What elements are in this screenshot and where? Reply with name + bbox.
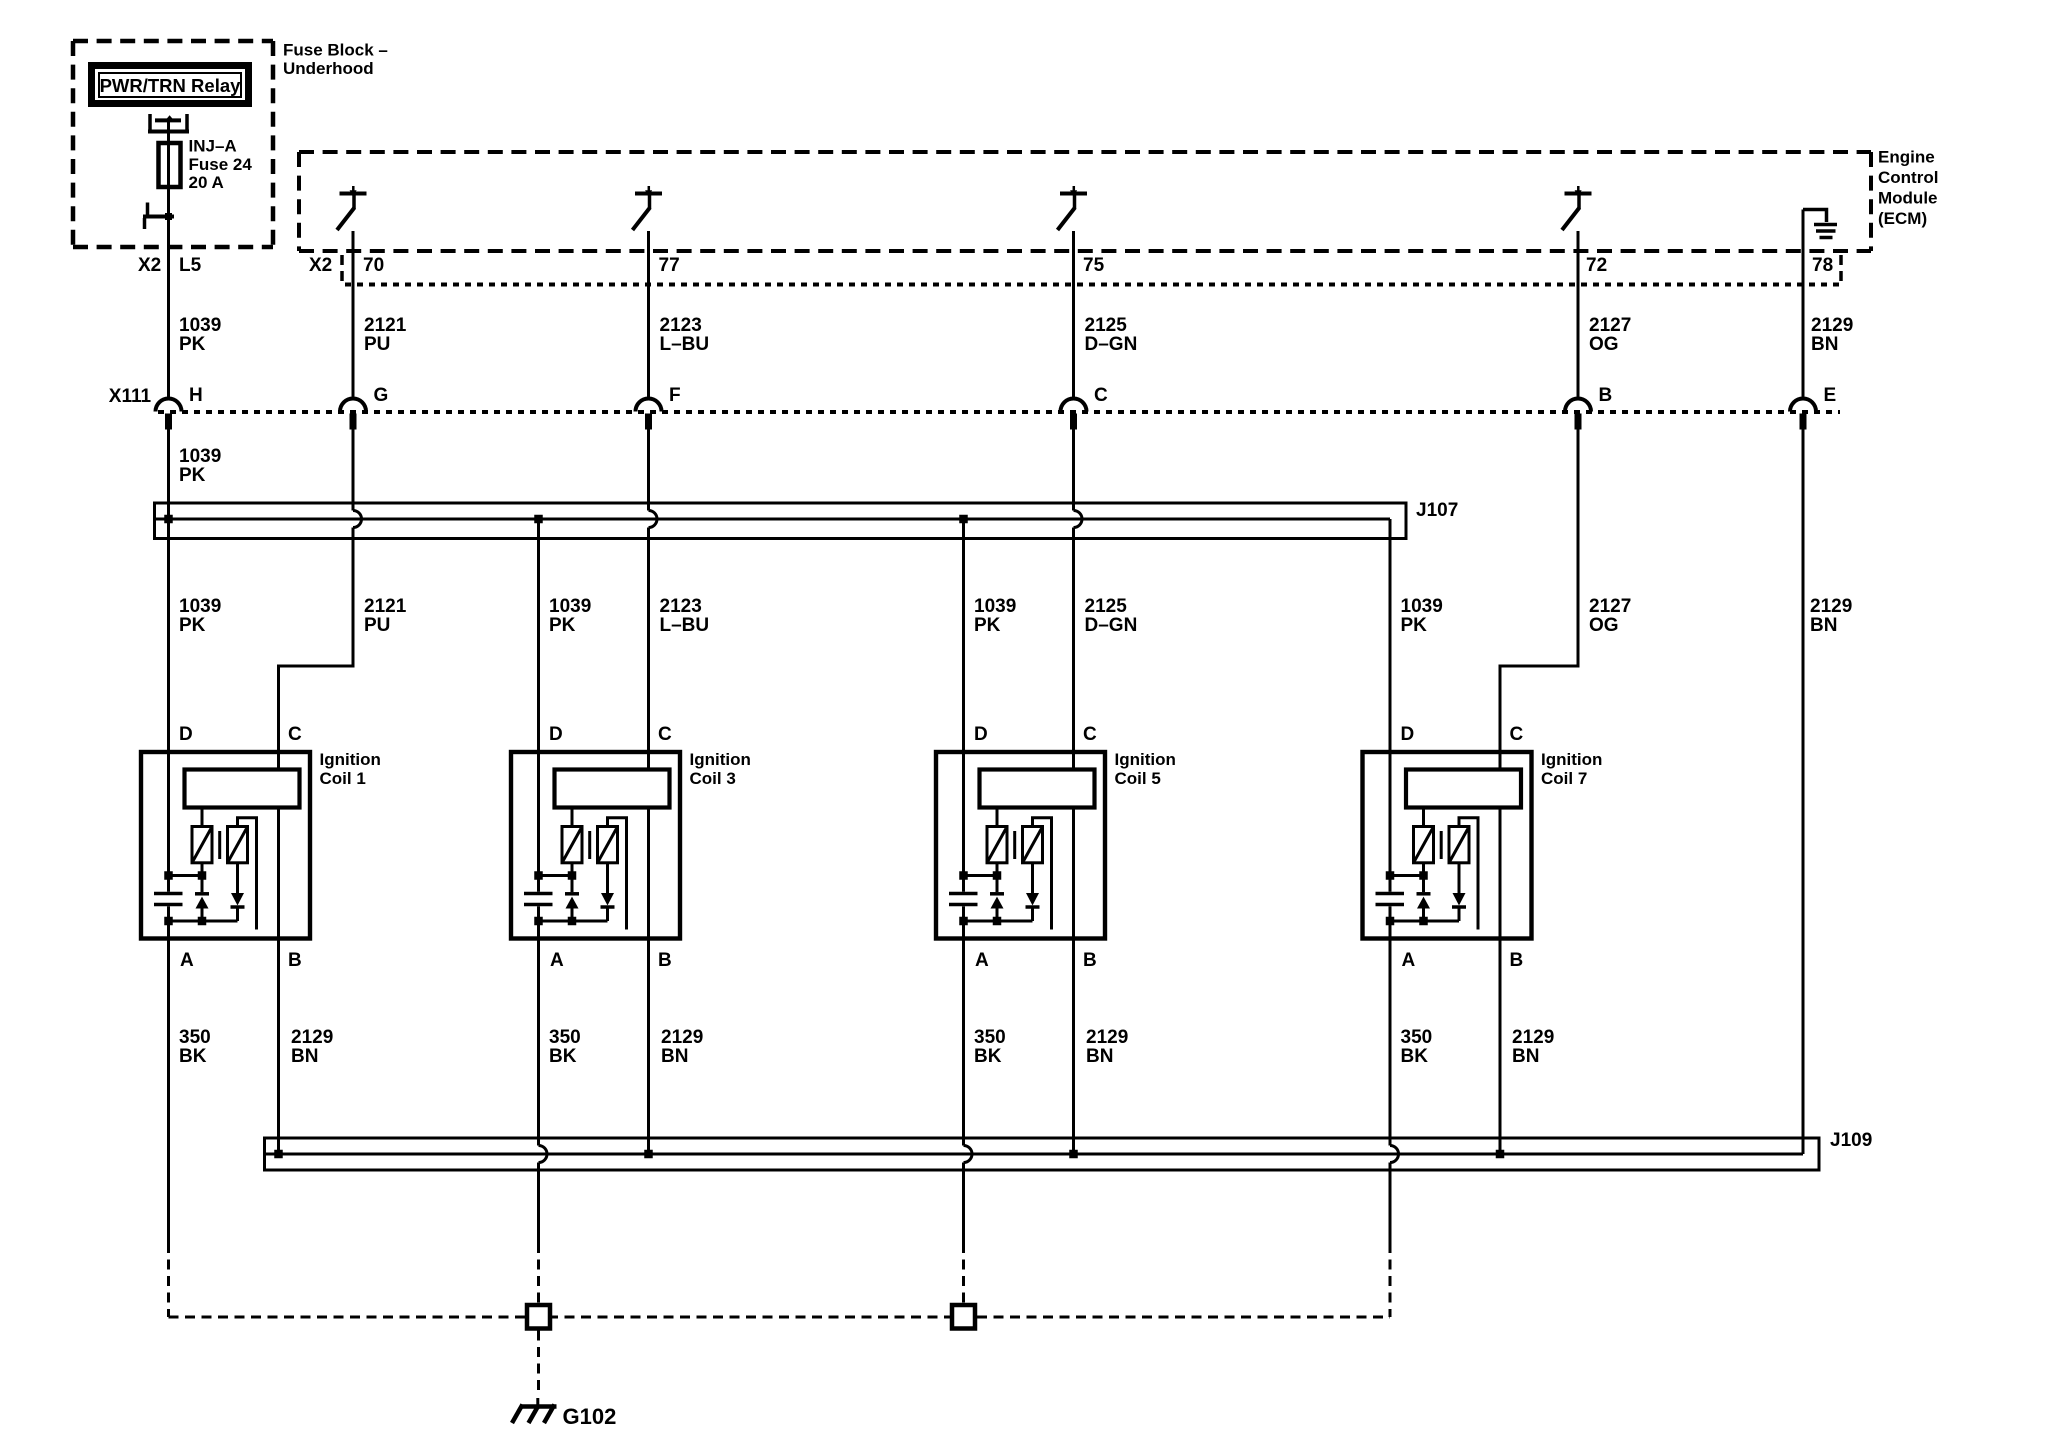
svg-text:2127: 2127 [1589, 596, 1631, 617]
svg-text:L–BU: L–BU [660, 615, 710, 636]
svg-text:(ECM): (ECM) [1878, 209, 1927, 228]
svg-text:BN: BN [661, 1046, 688, 1067]
svg-text:E: E [1824, 385, 1837, 406]
svg-text:C: C [658, 724, 672, 745]
svg-text:D–GN: D–GN [1085, 615, 1138, 636]
svg-text:B: B [1083, 950, 1097, 971]
svg-text:Ignition: Ignition [690, 750, 751, 769]
svg-text:X2: X2 [309, 255, 332, 276]
svg-text:PK: PK [974, 615, 1001, 636]
svg-text:75: 75 [1083, 255, 1105, 276]
svg-text:Coil 3: Coil 3 [690, 769, 736, 788]
svg-text:Coil 7: Coil 7 [1541, 769, 1587, 788]
svg-text:Ignition: Ignition [1541, 750, 1602, 769]
svg-text:1039: 1039 [179, 446, 221, 467]
svg-text:72: 72 [1586, 255, 1607, 276]
svg-text:F: F [669, 385, 681, 406]
svg-text:G102: G102 [563, 1404, 617, 1429]
svg-text:Ignition: Ignition [320, 750, 381, 769]
svg-text:J109: J109 [1830, 1130, 1872, 1151]
svg-text:PU: PU [364, 615, 390, 636]
svg-text:A: A [550, 950, 564, 971]
svg-text:2129: 2129 [1512, 1027, 1554, 1048]
svg-text:B: B [1510, 950, 1524, 971]
svg-text:J107: J107 [1416, 500, 1458, 521]
svg-text:BK: BK [974, 1046, 1002, 1067]
svg-text:2123: 2123 [660, 315, 702, 336]
svg-text:L5: L5 [179, 255, 202, 276]
svg-text:X2: X2 [138, 255, 161, 276]
svg-text:2127: 2127 [1589, 315, 1631, 336]
svg-text:2129: 2129 [291, 1027, 333, 1048]
svg-text:INJ–A: INJ–A [189, 137, 237, 156]
svg-text:PU: PU [364, 334, 390, 355]
svg-text:350: 350 [1401, 1027, 1433, 1048]
svg-text:BK: BK [1401, 1046, 1429, 1067]
svg-text:2129: 2129 [1810, 596, 1852, 617]
svg-text:1039: 1039 [1401, 596, 1443, 617]
svg-text:BN: BN [1086, 1046, 1113, 1067]
svg-text:2129: 2129 [1811, 315, 1853, 336]
svg-text:78: 78 [1812, 255, 1833, 276]
svg-text:BK: BK [549, 1046, 577, 1067]
svg-text:L–BU: L–BU [660, 334, 710, 355]
svg-text:C: C [1083, 724, 1097, 745]
svg-text:C: C [288, 724, 302, 745]
svg-text:D–GN: D–GN [1085, 334, 1138, 355]
svg-text:Coil 5: Coil 5 [1115, 769, 1161, 788]
svg-text:PK: PK [179, 615, 206, 636]
svg-text:350: 350 [549, 1027, 581, 1048]
svg-text:PK: PK [549, 615, 576, 636]
svg-text:OG: OG [1589, 615, 1619, 636]
svg-text:G: G [374, 385, 389, 406]
svg-text:A: A [180, 950, 194, 971]
svg-text:B: B [658, 950, 672, 971]
svg-text:Fuse 24: Fuse 24 [189, 155, 253, 174]
svg-text:D: D [974, 724, 988, 745]
svg-text:1039: 1039 [549, 596, 591, 617]
svg-text:D: D [179, 724, 193, 745]
svg-text:1039: 1039 [179, 596, 221, 617]
svg-text:BK: BK [179, 1046, 207, 1067]
svg-text:X111: X111 [109, 386, 152, 407]
svg-text:PK: PK [179, 334, 206, 355]
svg-text:Ignition: Ignition [1115, 750, 1176, 769]
svg-text:B: B [1599, 385, 1613, 406]
svg-text:A: A [1402, 950, 1416, 971]
svg-text:Control: Control [1878, 168, 1938, 187]
svg-text:BN: BN [1512, 1046, 1539, 1067]
svg-text:D: D [1401, 724, 1415, 745]
svg-text:PK: PK [179, 465, 206, 486]
svg-text:70: 70 [363, 255, 384, 276]
svg-text:2129: 2129 [661, 1027, 703, 1048]
svg-text:Module: Module [1878, 189, 1938, 208]
svg-text:PK: PK [1401, 615, 1428, 636]
svg-text:OG: OG [1589, 334, 1619, 355]
svg-text:BN: BN [1810, 615, 1837, 636]
svg-text:2125: 2125 [1085, 315, 1128, 336]
svg-text:1039: 1039 [179, 315, 221, 336]
svg-text:BN: BN [1811, 334, 1838, 355]
svg-text:A: A [975, 950, 989, 971]
svg-text:2125: 2125 [1085, 596, 1128, 617]
svg-text:Engine: Engine [1878, 148, 1935, 167]
svg-text:2121: 2121 [364, 315, 407, 336]
svg-text:1039: 1039 [974, 596, 1016, 617]
svg-text:PWR/TRN Relay: PWR/TRN Relay [100, 75, 242, 96]
svg-text:2129: 2129 [1086, 1027, 1128, 1048]
svg-text:Coil 1: Coil 1 [320, 769, 366, 788]
svg-text:350: 350 [974, 1027, 1006, 1048]
svg-text:D: D [549, 724, 563, 745]
svg-text:C: C [1510, 724, 1524, 745]
svg-text:C: C [1094, 385, 1108, 406]
svg-text:BN: BN [291, 1046, 318, 1067]
svg-text:Underhood: Underhood [283, 59, 374, 78]
svg-text:B: B [288, 950, 302, 971]
svg-text:Fuse Block –: Fuse Block – [283, 41, 388, 60]
svg-text:77: 77 [659, 255, 680, 276]
svg-text:H: H [189, 385, 203, 406]
svg-text:20 A: 20 A [189, 173, 224, 192]
svg-text:350: 350 [179, 1027, 211, 1048]
svg-text:2121: 2121 [364, 596, 407, 617]
svg-text:2123: 2123 [660, 596, 702, 617]
